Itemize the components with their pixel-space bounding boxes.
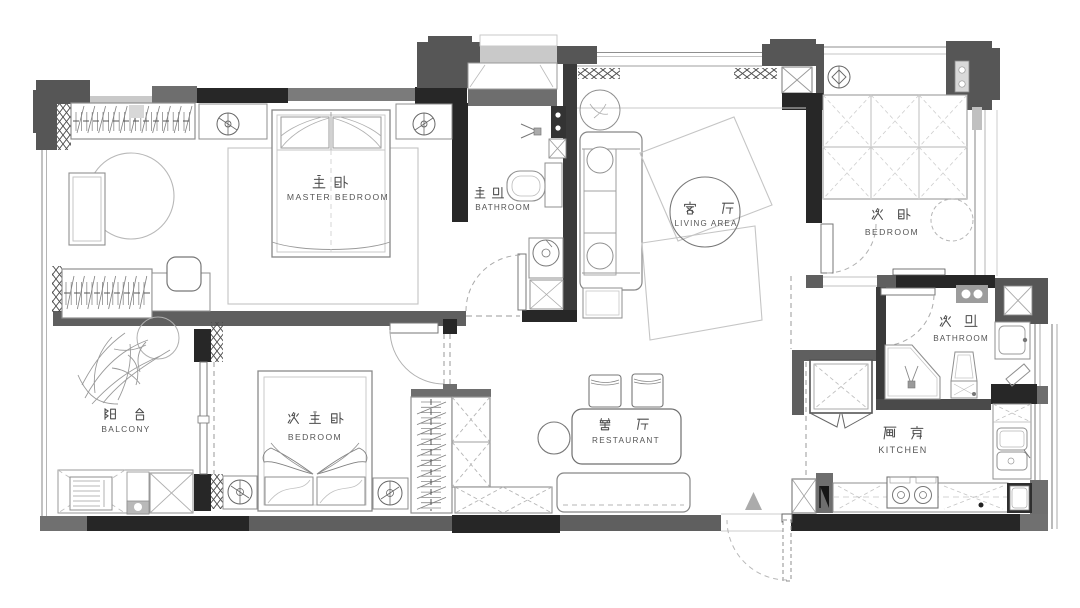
svg-text:RESTAURANT: RESTAURANT xyxy=(592,436,660,445)
svg-text:MASTER BEDROOM: MASTER BEDROOM xyxy=(287,192,389,202)
svg-text:BATHROOM: BATHROOM xyxy=(475,203,531,212)
svg-text:BALCONY: BALCONY xyxy=(101,424,150,434)
svg-text:BATHROOM: BATHROOM xyxy=(933,334,989,343)
svg-text:KITCHEN: KITCHEN xyxy=(878,445,927,455)
svg-text:BEDROOM: BEDROOM xyxy=(288,432,342,442)
svg-text:LIVING AREA: LIVING AREA xyxy=(675,219,738,228)
svg-text:BEDROOM: BEDROOM xyxy=(865,227,919,237)
